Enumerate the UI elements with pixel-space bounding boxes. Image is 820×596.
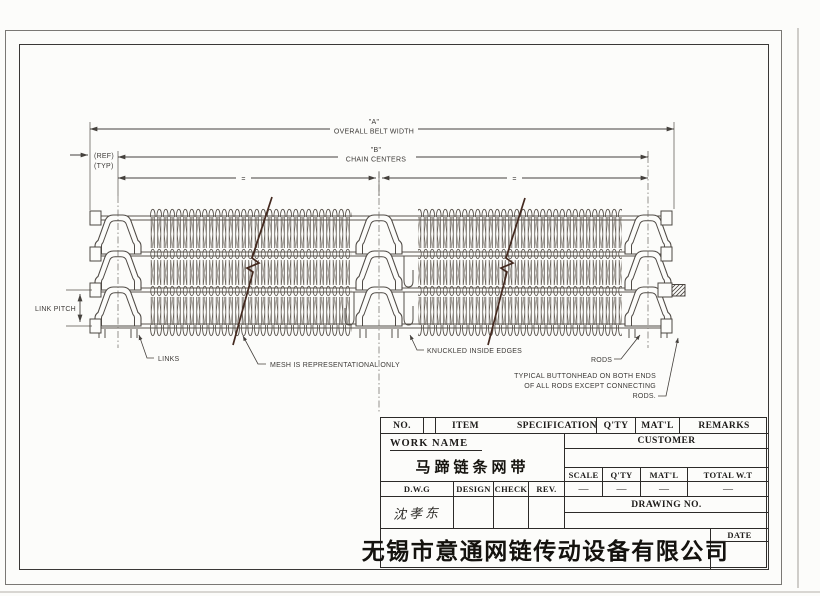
- check-header-cell: CHECK: [494, 482, 529, 497]
- work-name-cell: WORK NAME 马蹄链条网带: [381, 434, 565, 482]
- dwg-header-cell: D.W.G: [381, 482, 454, 497]
- dimension-a: "A" OVERALL BELT WIDTH: [90, 119, 674, 136]
- qty2-label: Q'TY: [611, 470, 633, 480]
- mesh-left-panel: [150, 205, 352, 341]
- matl2-value: —: [659, 484, 669, 495]
- ref-typ-note: (REF) (TYP): [70, 153, 114, 170]
- link-pitch-dimension: LINK PITCH: [35, 290, 92, 326]
- mesh-right-panel: [418, 205, 622, 341]
- check-value-cell: [494, 497, 529, 529]
- rev-label: REV.: [536, 484, 556, 494]
- dim-b-sublabel: CHAIN CENTERS: [346, 157, 407, 164]
- callouts: LINKS MESH IS REPRESENTATIONAL ONLY KNUC…: [139, 335, 678, 400]
- rev-value-cell: [529, 497, 565, 529]
- drawing-no-value-cell: [565, 513, 768, 529]
- buttonhead-note-line2: OF ALL RODS EXCEPT CONNECTING: [524, 383, 656, 390]
- dwg-label: D.W.G: [404, 484, 430, 494]
- buttonhead-note-line3: RODS.: [633, 393, 656, 400]
- check-label: CHECK: [495, 484, 528, 494]
- total-wt-header-cell: TOTAL W.T: [688, 468, 768, 482]
- customer-value-cell: [565, 449, 768, 468]
- date-label: DATE: [727, 530, 751, 540]
- scale-label: SCALE: [569, 470, 599, 480]
- matl2-label: MAT'L: [650, 470, 679, 480]
- col-matl: MAT'L: [636, 418, 680, 434]
- equal-mark-right: =: [512, 176, 516, 183]
- title-block: NO. ITEM SPECIFICATION Q'TY MAT'L REMARK…: [380, 417, 767, 568]
- col-remarks: REMARKS: [680, 418, 768, 434]
- total-wt-label: TOTAL W.T: [704, 470, 753, 480]
- scale-value-cell: —: [565, 482, 603, 497]
- connecting-rod-end: [672, 285, 685, 297]
- dim-a-sublabel: OVERALL BELT WIDTH: [334, 129, 414, 136]
- mesh-note-label: MESH IS REPRESENTATIONAL ONLY: [270, 362, 400, 369]
- drawing-sheet: "A" OVERALL BELT WIDTH "B" CHAIN CENTERS…: [0, 0, 820, 596]
- matl2-value-cell: —: [641, 482, 688, 497]
- company-cell: 无锡市意通网链传动设备有限公司: [381, 529, 711, 569]
- drawing-no-header-cell: DRAWING NO.: [565, 497, 768, 513]
- drawing-no-label: DRAWING NO.: [631, 500, 701, 510]
- dim-b-label: "B": [371, 147, 382, 154]
- qty2-value: —: [617, 484, 627, 495]
- col-qty: Q'TY: [597, 418, 636, 434]
- qty2-header-cell: Q'TY: [603, 468, 641, 482]
- col-item-spec: ITEM SPECIFICATION: [436, 418, 597, 434]
- buttonhead-note-line1: TYPICAL BUTTONHEAD ON BOTH ENDS: [514, 373, 656, 380]
- scale-value: —: [579, 484, 589, 495]
- typ-label: (TYP): [94, 163, 114, 170]
- matl2-header-cell: MAT'L: [641, 468, 688, 482]
- col-matl-label: MAT'L: [641, 421, 673, 431]
- date-header-cell: DATE: [711, 529, 768, 542]
- total-wt-value: —: [723, 484, 733, 495]
- dim-a-label: "A": [369, 119, 380, 126]
- col-item-label: ITEM: [452, 421, 479, 431]
- date-value-cell: [711, 542, 768, 569]
- col-remarks-label: REMARKS: [698, 421, 749, 431]
- scale-header-cell: SCALE: [565, 468, 603, 482]
- work-name-label: WORK NAME: [390, 438, 482, 451]
- design-label: DESIGN: [456, 484, 490, 494]
- rods-label: RODS: [591, 357, 612, 364]
- work-name-value: 马蹄链条网带: [415, 456, 529, 477]
- ref-label: (REF): [94, 153, 114, 160]
- company-name: 无锡市意通网链传动设备有限公司: [362, 532, 730, 566]
- customer-cell: CUSTOMER: [565, 434, 768, 449]
- design-header-cell: DESIGN: [454, 482, 494, 497]
- dimension-equal-spans: = =: [118, 173, 648, 183]
- knuckled-label: KNUCKLED INSIDE EDGES: [427, 348, 522, 355]
- total-wt-value-cell: —: [688, 482, 768, 497]
- rev-header-cell: REV.: [529, 482, 565, 497]
- customer-label: CUSTOMER: [638, 436, 696, 446]
- dwg-signature-cell: 沈孝东: [381, 497, 454, 529]
- equal-mark-left: =: [241, 176, 245, 183]
- links-label: LINKS: [158, 356, 180, 363]
- col-no: NO.: [381, 418, 424, 434]
- col-qty-label: Q'TY: [604, 421, 629, 431]
- col-specification-label: SPECIFICATION: [517, 421, 597, 431]
- dimension-b: "B" CHAIN CENTERS: [118, 147, 648, 164]
- col-no-label: NO.: [393, 421, 411, 431]
- dwg-signature: 沈孝东: [393, 502, 442, 523]
- design-value-cell: [454, 497, 494, 529]
- qty2-value-cell: —: [603, 482, 641, 497]
- link-pitch-label: LINK PITCH: [35, 306, 76, 313]
- col-narrow: [424, 418, 436, 434]
